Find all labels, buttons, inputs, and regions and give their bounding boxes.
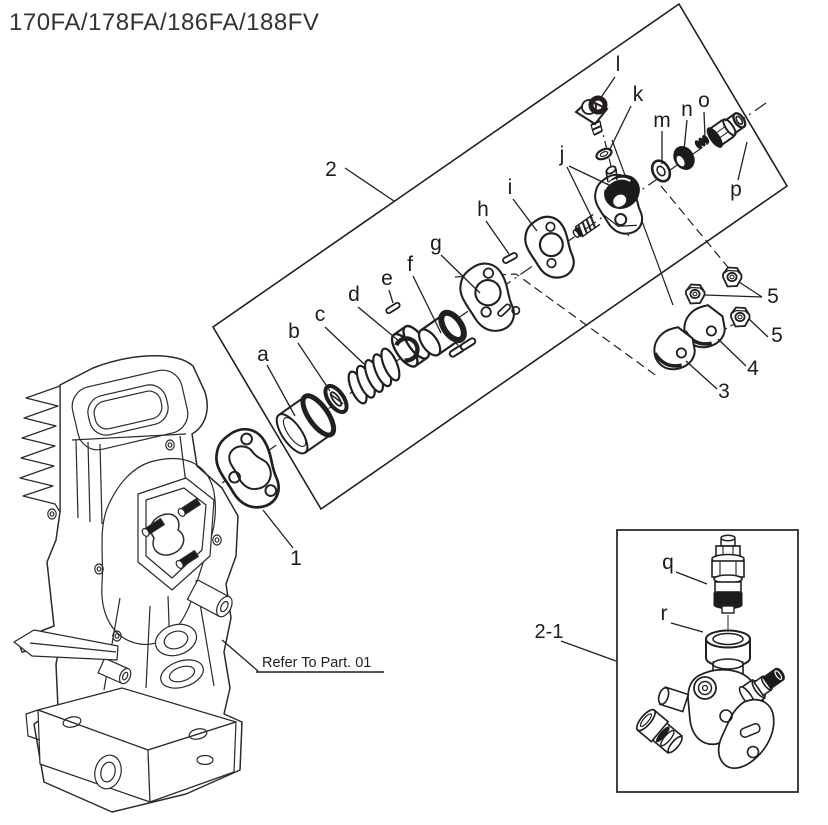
callout-5-single: 5 <box>771 324 783 347</box>
callout-r: r <box>661 602 668 625</box>
callout-b: b <box>288 320 300 343</box>
inset-box <box>617 530 798 792</box>
callout-2-1: 2-1 <box>535 621 564 643</box>
nut-5a <box>686 285 705 304</box>
callout-g: g <box>430 232 442 255</box>
callout-p: p <box>730 178 742 201</box>
part-p-valve-holder <box>704 108 749 149</box>
part-q-delivery-valve <box>712 535 744 636</box>
inset-pump-assembly <box>634 659 790 768</box>
callout-j: j <box>559 143 565 166</box>
callout-l: l <box>616 53 621 76</box>
callout-d: d <box>348 283 360 306</box>
callout-f: f <box>407 253 413 276</box>
callout-c: c <box>315 303 326 326</box>
engine-block <box>14 356 242 812</box>
callout-o: o <box>698 89 710 112</box>
callout-q: q <box>662 551 674 574</box>
part-e-pin <box>385 302 400 314</box>
nut-5c <box>731 308 750 327</box>
page-title: 170FA/178FA/186FA/188FV <box>9 9 319 36</box>
callout-5-pair: 5 <box>767 285 779 308</box>
callout-k: k <box>633 83 644 106</box>
part-i-gasket <box>516 210 587 286</box>
callout-4: 4 <box>747 357 759 380</box>
callout-h: h <box>477 198 489 221</box>
callout-a: a <box>257 343 269 366</box>
part-h-pin <box>502 252 518 264</box>
refer-note: Refer To Part. 01 <box>262 655 371 671</box>
plunger-barrel <box>634 707 686 757</box>
parts-diagram-page: 170FA/178FA/186FA/188FV <box>0 0 828 825</box>
callout-2: 2 <box>325 158 337 181</box>
callout-e: e <box>381 267 393 290</box>
callout-m: m <box>653 109 671 132</box>
nut-5b <box>723 268 742 287</box>
callout-3: 3 <box>718 380 730 403</box>
callout-i: i <box>508 176 513 199</box>
cooling-fins <box>20 386 60 512</box>
callout-n: n <box>681 98 693 121</box>
part-m-washer <box>649 157 674 184</box>
callout-1: 1 <box>290 547 302 570</box>
lower-union <box>571 214 600 239</box>
